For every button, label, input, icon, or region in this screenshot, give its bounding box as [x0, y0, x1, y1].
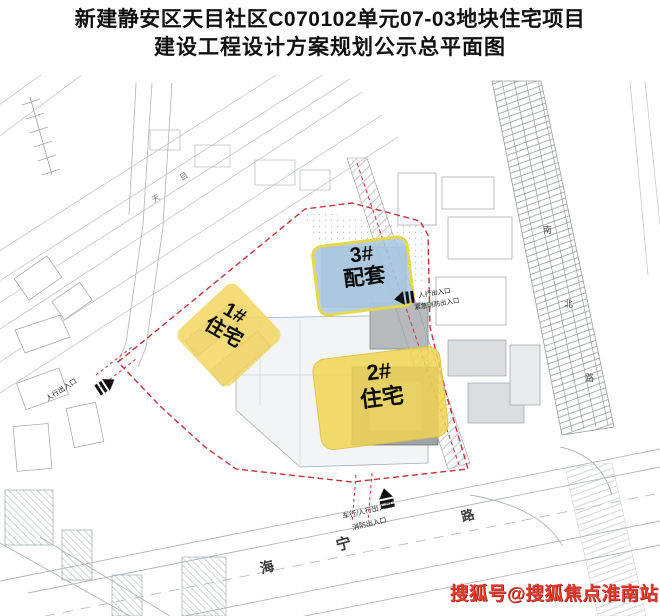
road-east-char-1: 南 — [543, 223, 552, 236]
title-line-2: 建设工程设计方案规划公示总平面图 — [0, 34, 660, 62]
buildings-north — [150, 130, 330, 190]
plan-linework — [0, 75, 660, 616]
hatched-block-south — [112, 557, 226, 616]
site-plan-page: 新建静安区天目社区C070102单元07-03地块住宅项目 建设工程设计方案规划… — [0, 0, 660, 616]
title-line-1: 新建静安区天目社区C070102单元07-03地块住宅项目 — [0, 6, 660, 34]
road-east-char-3: 路 — [585, 371, 594, 384]
east-entrance-arrow-icon — [393, 290, 415, 307]
watermark: 搜狐号@搜狐焦点淮南站 — [450, 580, 659, 606]
site-plan-drawing: 1# 住宅 3# 配套 2# 住宅 人行出入口 人行出入口 紧急消防出入口 车行… — [0, 75, 660, 616]
road-east-char-2: 北 — [564, 297, 573, 310]
page-title: 新建静安区天目社区C070102单元07-03地块住宅项目 建设工程设计方案规划… — [0, 6, 660, 62]
stair-marks — [22, 97, 60, 175]
